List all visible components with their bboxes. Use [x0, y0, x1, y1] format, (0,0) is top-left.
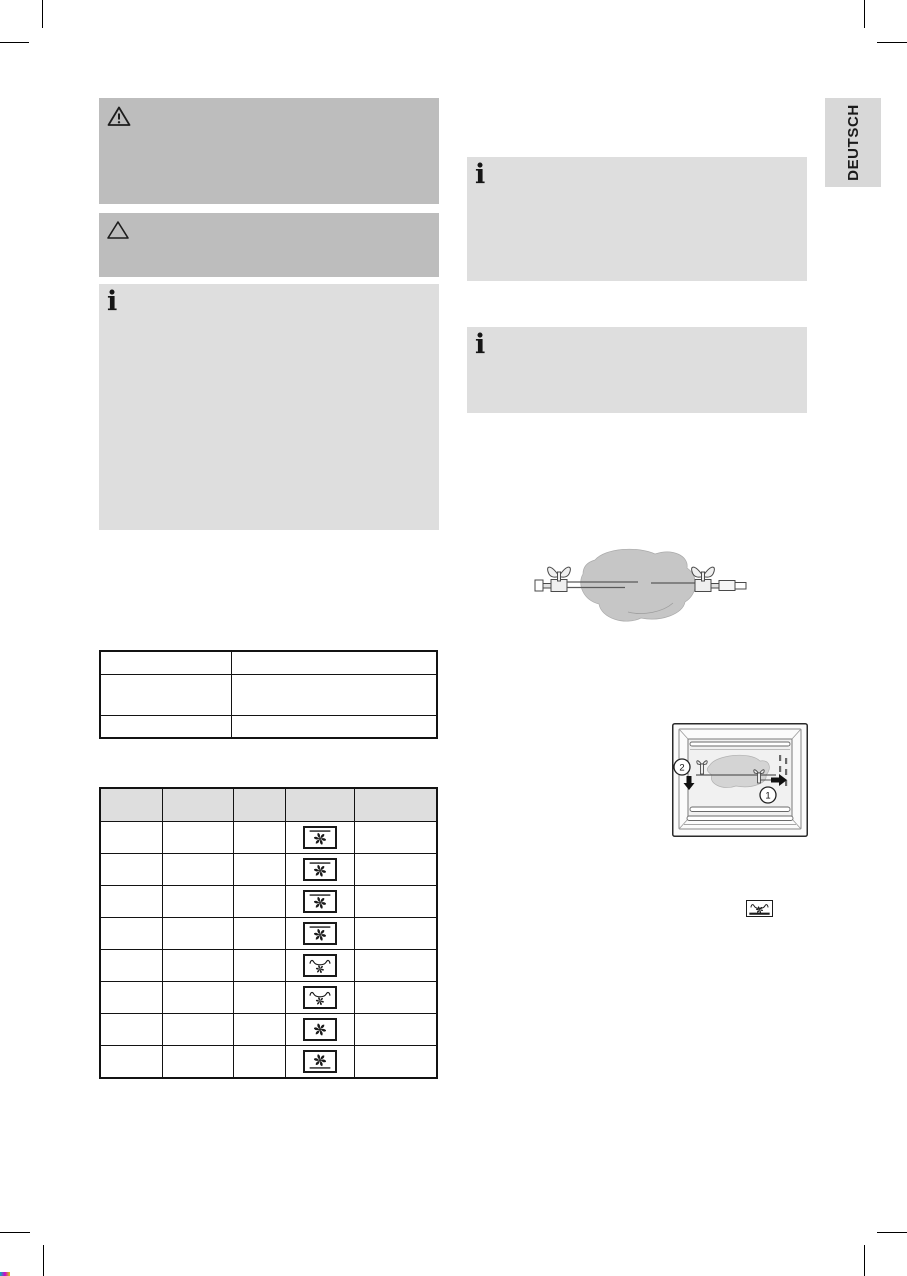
- cooking-table-cell: [233, 886, 285, 917]
- warning-triangle-icon: [107, 105, 131, 132]
- mode-icon-cell: [285, 886, 354, 917]
- spec-table-cell: [101, 652, 231, 674]
- cooking-table-cell: [354, 886, 436, 917]
- manual-page: DEUTSCH i i i: [0, 0, 907, 1276]
- cooking-table-cell: [101, 918, 162, 949]
- rotisserie-spit-illustration: [533, 546, 748, 628]
- spec-table-cell: [101, 716, 231, 737]
- cooking-table-cell: [233, 1014, 285, 1045]
- cooking-table-cell: [101, 854, 162, 885]
- fan-icon: [305, 1020, 335, 1039]
- grill-fan-icon: [746, 900, 773, 917]
- mode-icon-cell: [285, 918, 354, 949]
- info-icon: i: [475, 334, 485, 357]
- cooking-table-cell: [233, 982, 285, 1013]
- cooking-table-cell: [233, 950, 285, 981]
- mode-icon-cell: [285, 854, 354, 885]
- fan-grill-icon: [305, 956, 335, 975]
- cooking-table-cell: [354, 982, 436, 1013]
- cooking-table-cell: [162, 950, 233, 981]
- fan-bottom-heat-icon: [305, 1052, 335, 1071]
- mode-icon-frame: [303, 826, 337, 849]
- warning-box-1: [99, 98, 439, 204]
- mode-icon-frame: [303, 986, 337, 1009]
- mode-icon-frame: [303, 954, 337, 977]
- crop-mark-top-left-h: [0, 42, 29, 43]
- cooking-table-cell: [233, 1046, 285, 1077]
- crop-mark-bottom-left-h: [0, 1232, 30, 1233]
- spec-table-cell: [231, 716, 436, 737]
- cooking-table-cell: [101, 982, 162, 1013]
- cooking-table-cell: [162, 822, 233, 853]
- info-box-right-top: i: [467, 157, 807, 281]
- cooking-table-cell: [354, 918, 436, 949]
- crop-mark-top-right-h: [877, 42, 907, 43]
- spec-table-row: [101, 715, 436, 737]
- fan-top-heat-icon: [305, 924, 335, 943]
- mode-icon-cell: [285, 950, 354, 981]
- crop-mark-top-right-v: [864, 0, 865, 28]
- cooking-table-cell: [162, 982, 233, 1013]
- cooking-table-cell: [162, 1014, 233, 1045]
- oven-cavity-illustration: 2 1: [672, 723, 808, 837]
- triangle-icon: [107, 220, 129, 245]
- mode-icon-cell: [285, 822, 354, 853]
- crop-mark-bottom-left-v: [43, 1245, 44, 1276]
- cooking-table-header-cell: [162, 789, 233, 821]
- cooking-table-cell: [233, 918, 285, 949]
- meat-roast-shape: [581, 549, 696, 621]
- cooking-table-cell: [162, 1046, 233, 1077]
- language-tab-deutsch: DEUTSCH: [825, 98, 881, 187]
- cooking-table-header-cell: [101, 789, 162, 821]
- cooking-table-cell: [233, 854, 285, 885]
- mode-icon-cell: [285, 1014, 354, 1045]
- info-icon: i: [475, 164, 485, 187]
- crop-mark-bottom-right-v: [864, 1245, 865, 1276]
- spec-table-row: [101, 674, 436, 715]
- info-box-left: i: [99, 284, 439, 530]
- fan-top-heat-icon: [305, 892, 335, 911]
- cooking-table-cell: [101, 886, 162, 917]
- cooking-modes-table: [99, 787, 438, 1079]
- fan-top-heat-icon: [305, 828, 335, 847]
- crop-mark-bottom-right-h: [877, 1232, 907, 1233]
- mode-icon-frame: [303, 858, 337, 881]
- wing-nut-left: [548, 567, 571, 581]
- fan-top-heat-icon: [305, 860, 335, 879]
- cooking-table-header-cell: [285, 789, 354, 821]
- mode-icon-frame: [303, 1018, 337, 1041]
- language-tab-label: DEUTSCH: [845, 104, 862, 181]
- cooking-table-cell: [162, 918, 233, 949]
- spec-table-cell: [231, 652, 436, 674]
- cooking-table-cell: [162, 854, 233, 885]
- cooking-table-row: [101, 1013, 436, 1045]
- crop-mark-top-left-v: [42, 0, 43, 28]
- cooking-table-cell: [162, 886, 233, 917]
- cooking-table-header-cell: [233, 789, 285, 821]
- mode-icon-frame: [303, 922, 337, 945]
- mode-icon-cell: [285, 1046, 354, 1077]
- cooking-table-cell: [354, 1046, 436, 1077]
- info-box-right-bottom: i: [467, 327, 807, 413]
- spec-table: [99, 650, 438, 739]
- info-icon: i: [107, 291, 117, 314]
- cooking-table-header-cell: [354, 789, 436, 821]
- spec-table-cell: [101, 675, 231, 715]
- mode-icon-cell: [285, 982, 354, 1013]
- mode-icon-frame: [303, 1050, 337, 1073]
- cooking-table-cell: [354, 1014, 436, 1045]
- callout-1-label: 1: [765, 791, 770, 802]
- callout-2-label: 2: [679, 763, 684, 774]
- mode-icon-frame: [303, 890, 337, 913]
- registration-color-mark: [0, 1272, 10, 1276]
- cooking-table-row: [101, 917, 436, 949]
- top-heating-element: [690, 742, 790, 746]
- cooking-table-row: [101, 981, 436, 1013]
- cooking-table-cell: [354, 822, 436, 853]
- cooking-table-row: [101, 1045, 436, 1077]
- spec-table-row: [101, 652, 436, 674]
- cooking-table-row: [101, 949, 436, 981]
- cooking-table-cell: [101, 1046, 162, 1077]
- cooking-table-row: [101, 853, 436, 885]
- cooking-table-cell: [233, 822, 285, 853]
- fan-grill-icon: [305, 988, 335, 1007]
- cooking-table-cell: [101, 822, 162, 853]
- cooking-table-row: [101, 885, 436, 917]
- cooking-table-cell: [354, 950, 436, 981]
- cooking-table-row: [101, 821, 436, 853]
- warning-box-2: [99, 213, 439, 277]
- cooking-table-cell: [101, 1014, 162, 1045]
- spec-table-cell: [231, 675, 436, 715]
- cooking-table-cell: [354, 854, 436, 885]
- cooking-table-cell: [101, 950, 162, 981]
- cooking-table-header: [101, 789, 436, 821]
